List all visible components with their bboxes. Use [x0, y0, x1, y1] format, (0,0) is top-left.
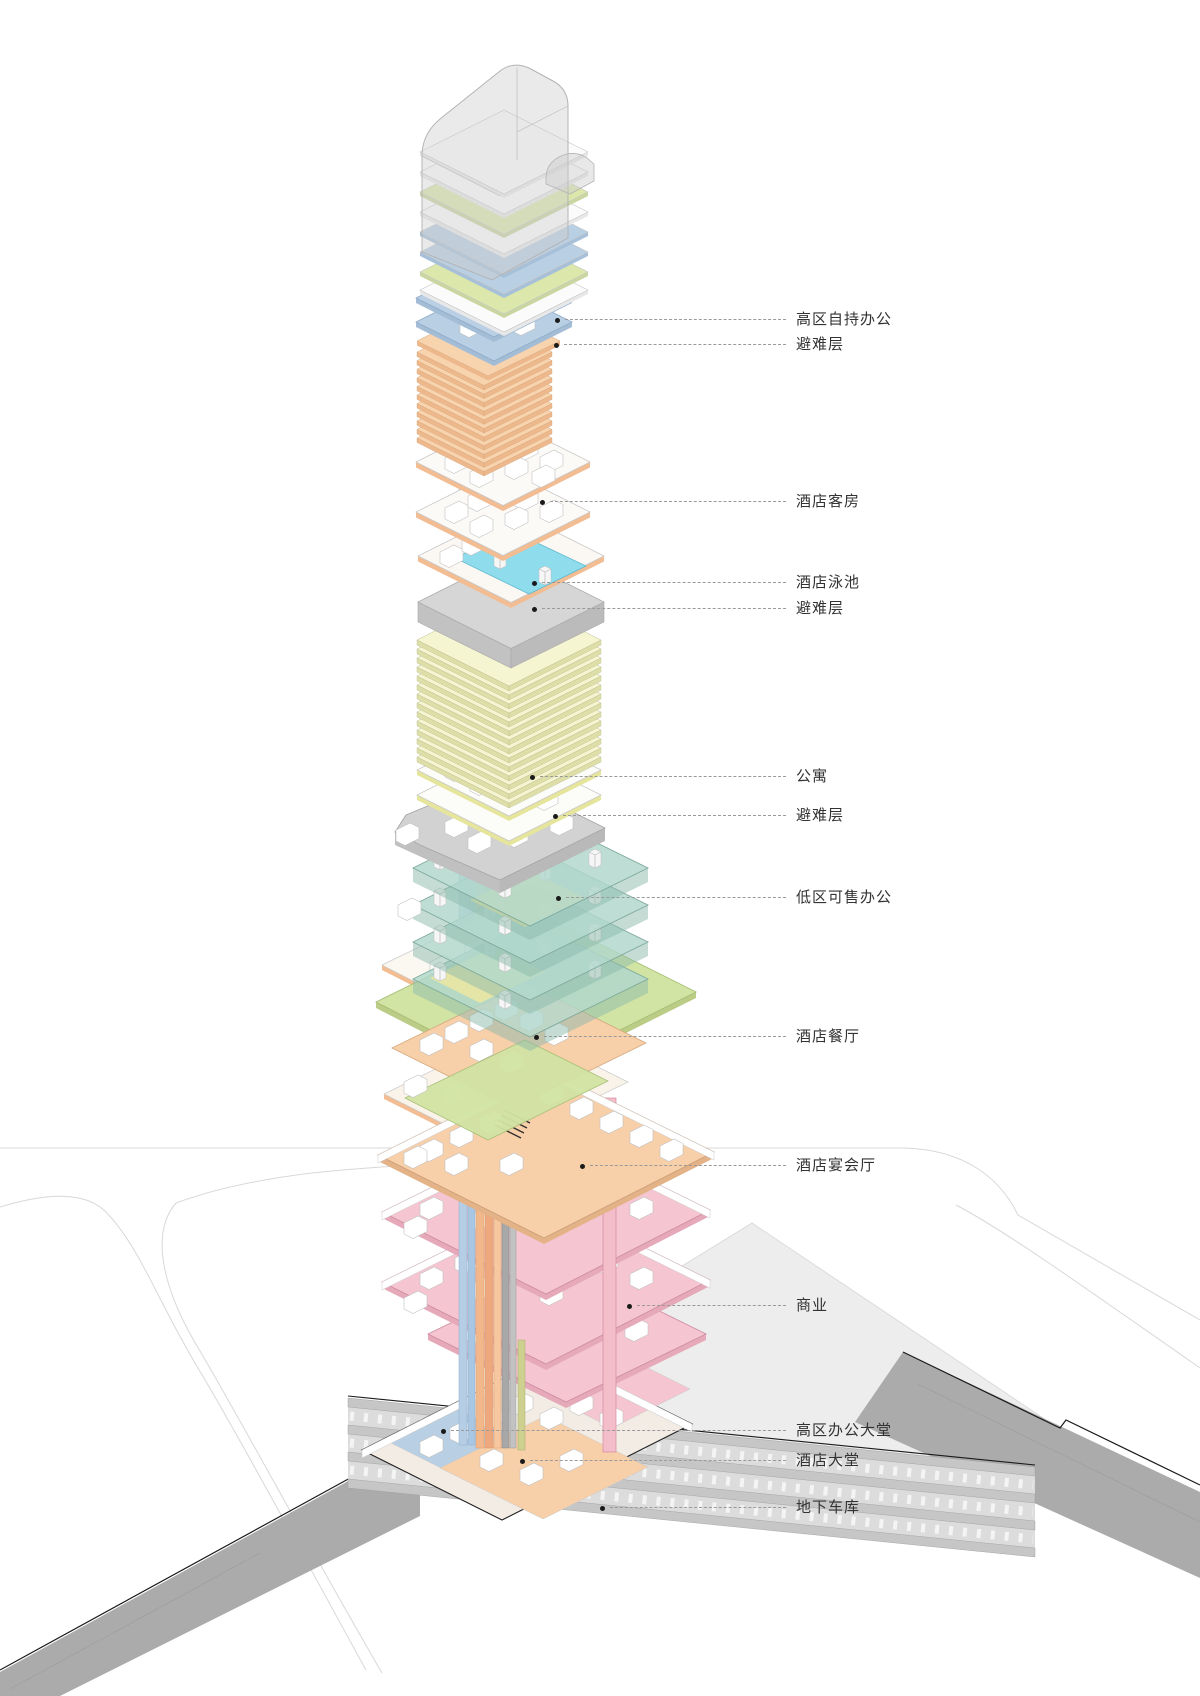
- tower-crown: [420, 65, 594, 336]
- diagram-canvas: 高区自持办公 避难层 酒店客房 酒店泳池 避难层 公寓 避难层 低区可售办公 酒: [0, 0, 1200, 1696]
- excavation-wall-left: [0, 1466, 420, 1696]
- exploded-column-stubs: [396, 823, 427, 1314]
- tower-axonometric-illustration: [0, 0, 1200, 1696]
